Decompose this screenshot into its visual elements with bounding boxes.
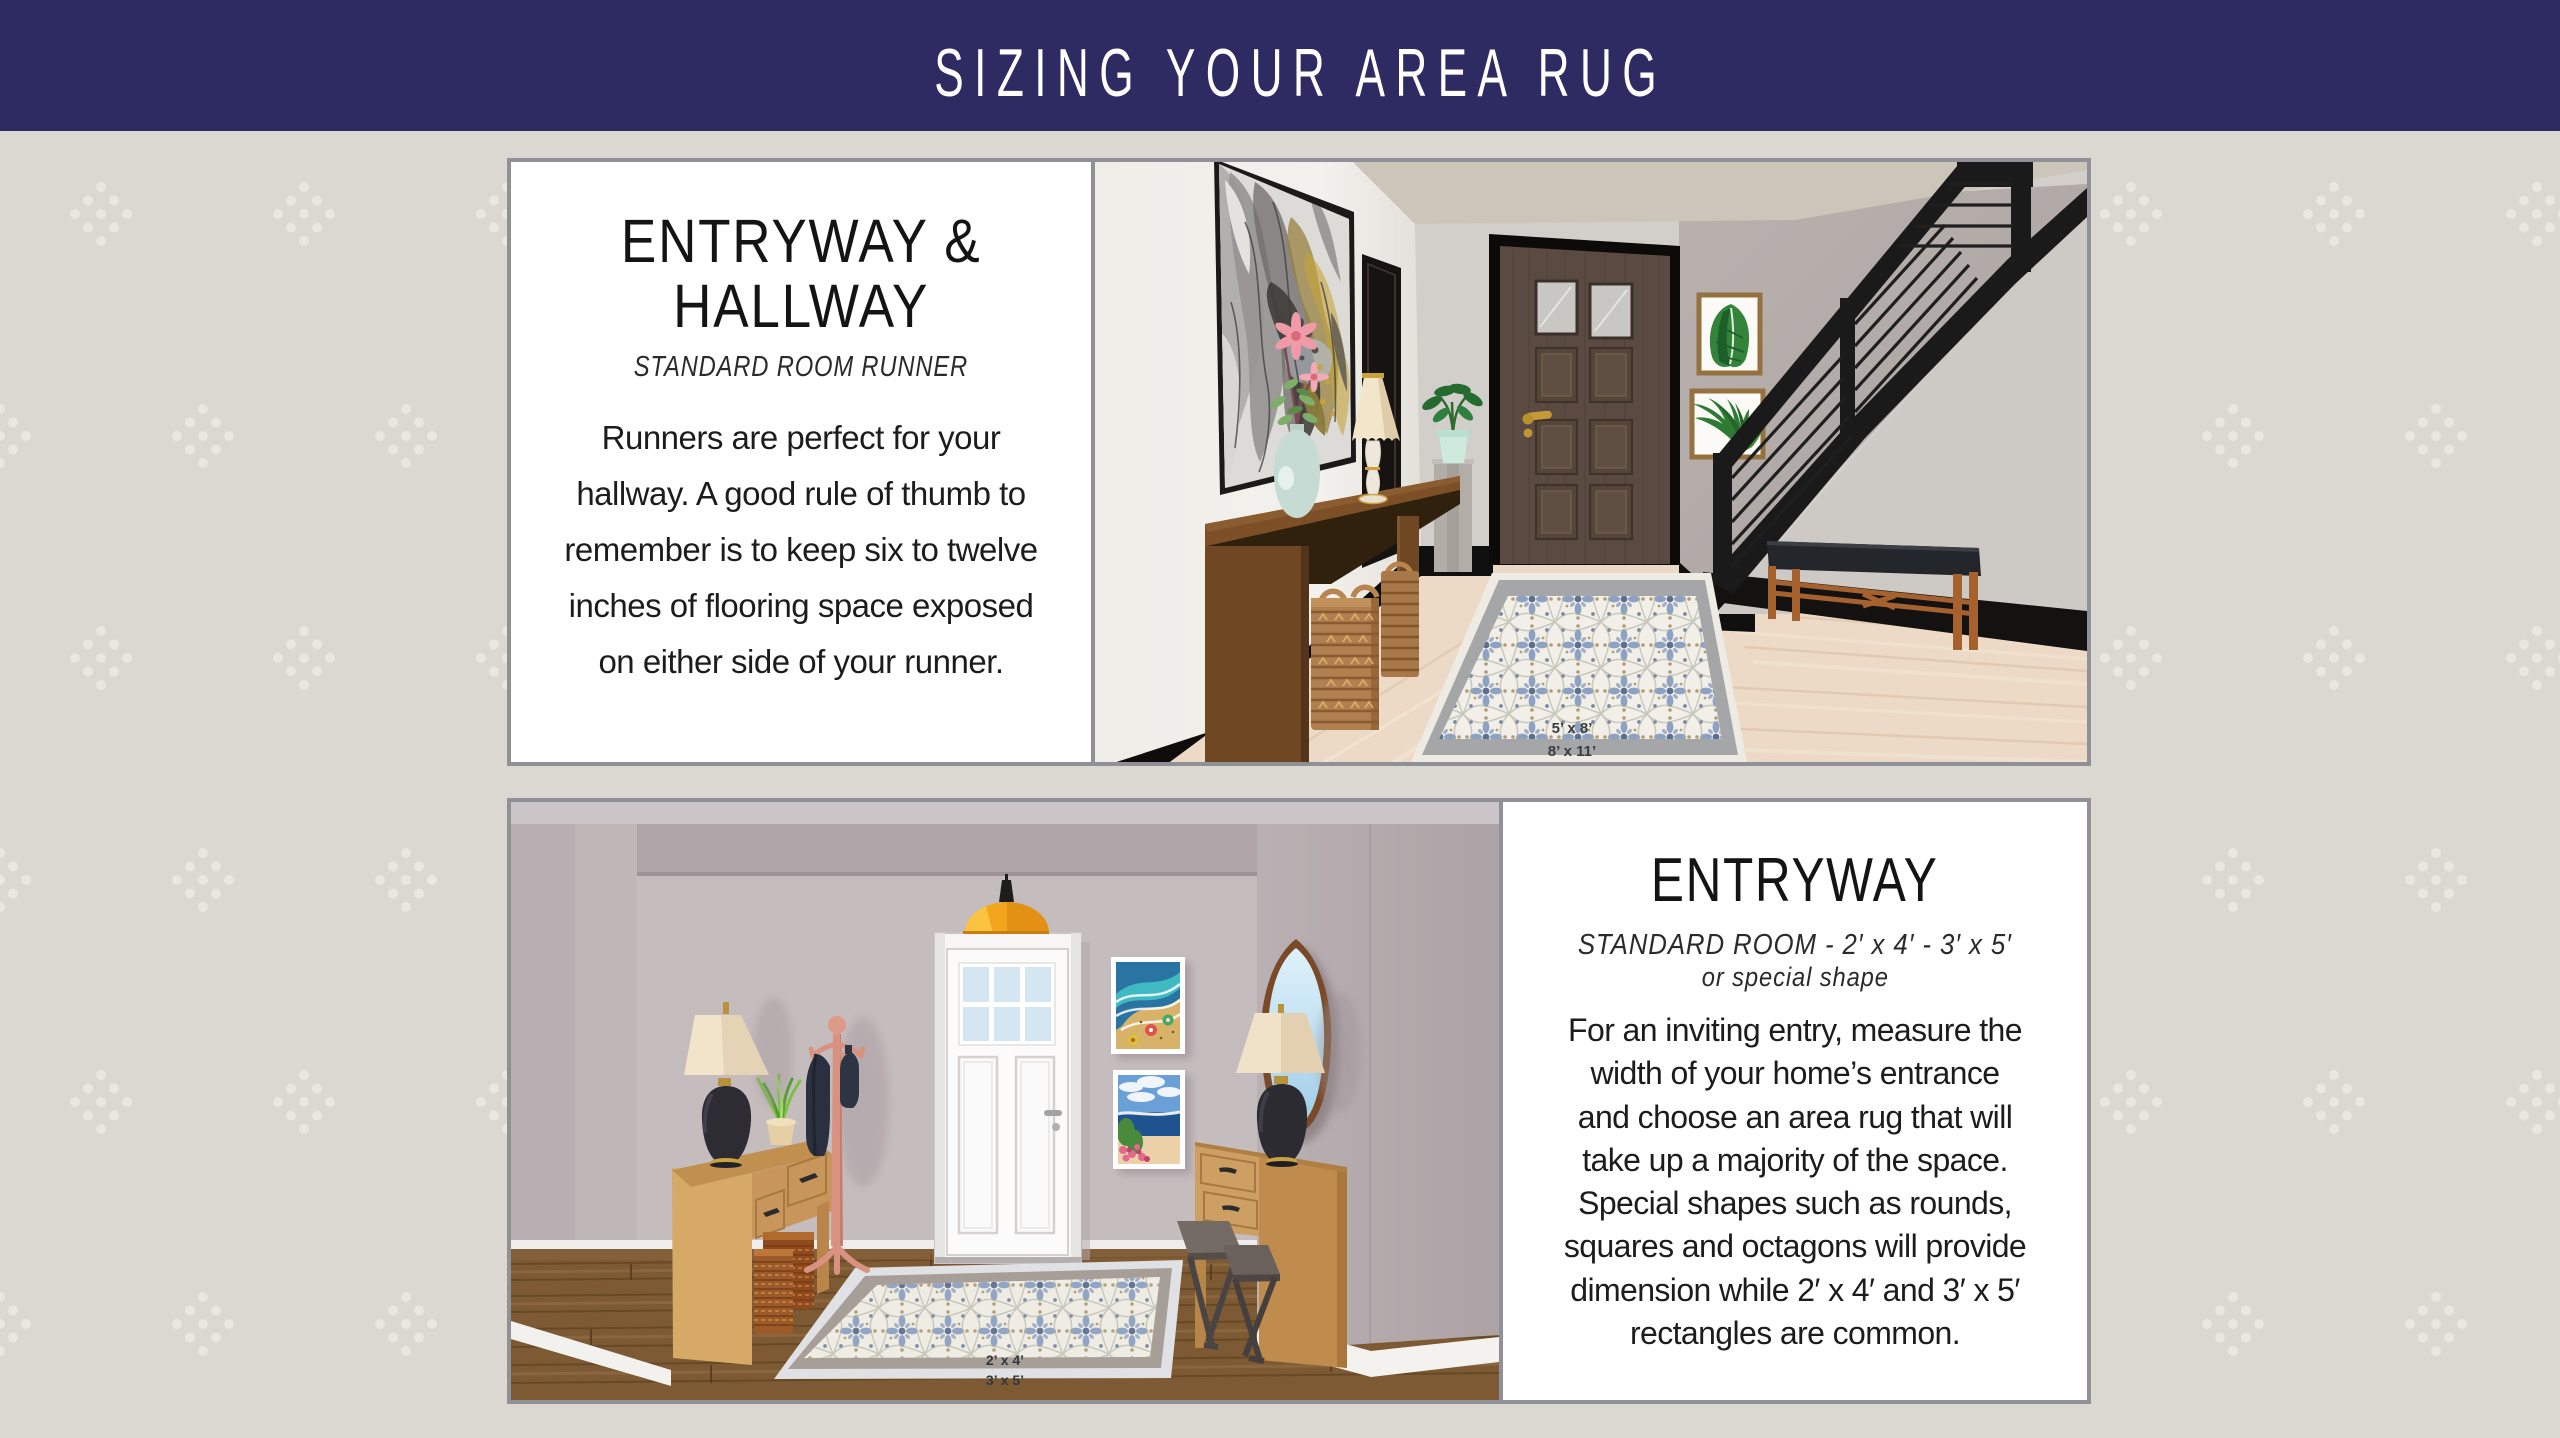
svg-text:8’ x 11’: 8’ x 11’ (1548, 743, 1596, 760)
svg-text:2’ x 4’: 2’ x 4’ (986, 1352, 1024, 1368)
svg-text:5’ x 8’: 5’ x 8’ (1552, 720, 1593, 737)
svg-text:3’ x 5’: 3’ x 5’ (986, 1372, 1024, 1388)
